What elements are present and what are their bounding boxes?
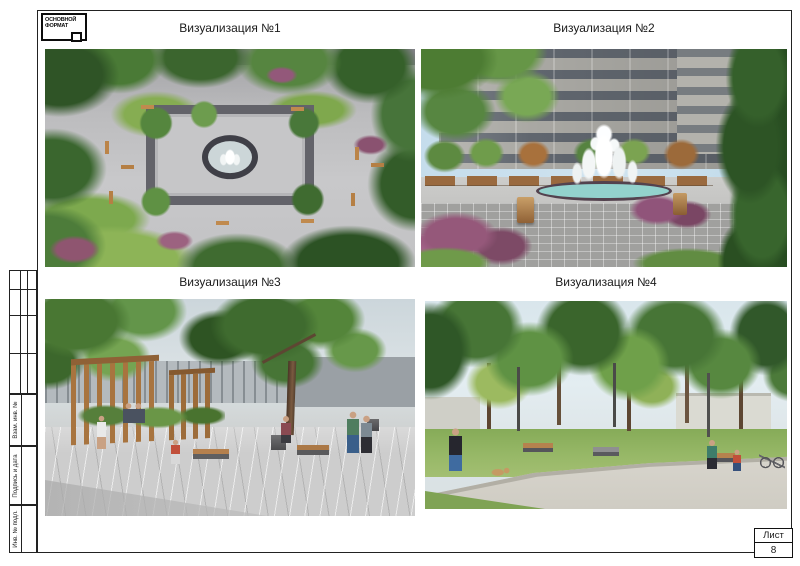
- grass-left: [421, 245, 501, 267]
- woman-standing: [361, 415, 372, 457]
- purple-bush-right: [617, 187, 717, 233]
- company-logo: ОСНОВНОЙ ФОРМАТ: [41, 13, 87, 41]
- stamp-label-podpis-data: Подпись и дата: [13, 454, 19, 497]
- stamp-cell-divider: [21, 506, 22, 552]
- tree-canopy-left: [421, 49, 581, 179]
- person-right: [707, 439, 717, 473]
- columnar-tree-right: [715, 49, 787, 267]
- stamp-cell-divider: [21, 447, 22, 504]
- company-logo-text: ОСНОВНОЙ ФОРМАТ: [45, 17, 76, 29]
- stamp-cell-podpis-data: Подпись и дата: [9, 446, 37, 505]
- logo-line2: ФОРМАТ: [45, 23, 76, 29]
- wooden-bin-left: [517, 197, 534, 223]
- light-poles: [517, 367, 520, 431]
- bench-right: [297, 445, 329, 455]
- visualization-1-image: [45, 49, 415, 267]
- bench-left: [523, 443, 553, 452]
- stamp-cell-divider: [21, 395, 22, 445]
- sheet-label-cell: Лист: [755, 529, 792, 543]
- signature-grid: [9, 270, 37, 394]
- caption-visualization-1: Визуализация №1: [45, 21, 415, 35]
- sheet-number-cell: 8: [755, 543, 792, 557]
- large-tree-canopy: [163, 299, 389, 405]
- woman-seated: [449, 427, 462, 475]
- person-walking-left: [97, 415, 106, 453]
- visualization-3-image: [45, 299, 415, 516]
- visualization-2-image: [421, 49, 787, 267]
- dog: [487, 467, 511, 479]
- bicycle-icon: [759, 453, 785, 469]
- drawing-sheet: ОСНОВНОЙ ФОРМАТ Визуализация №1 Визуализ…: [0, 0, 800, 566]
- child-running: [171, 439, 180, 467]
- people-seated-pergola: [123, 403, 145, 423]
- caption-visualization-4: Визуализация №4: [425, 275, 787, 289]
- man-standing: [347, 411, 359, 457]
- fountain-jets: [217, 144, 243, 168]
- stamp-cell-vzam-inv: Взам. инв. №: [9, 394, 37, 446]
- stamp-label-vzam-inv: Взам. инв. №: [13, 401, 19, 438]
- bench-middle: [593, 447, 619, 456]
- child-right: [733, 449, 741, 475]
- tree-canopies: [425, 301, 787, 447]
- woman-seated-bench: [281, 415, 291, 449]
- caption-visualization-2: Визуализация №2: [421, 21, 787, 35]
- logo-step-mark-icon: [71, 32, 82, 42]
- benches-horizontal: [141, 105, 154, 109]
- stamp-cell-inv-podl: Инв. № подл.: [9, 505, 37, 553]
- sheet-number-box: Лист 8: [754, 528, 793, 558]
- wooden-bin-right: [673, 193, 687, 215]
- bench-center: [193, 449, 229, 459]
- stamp-label-inv-podl: Инв. № подл.: [13, 510, 19, 547]
- benches-vertical: [105, 141, 109, 154]
- visualization-4-image: [425, 301, 787, 509]
- caption-visualization-3: Визуализация №3: [45, 275, 415, 289]
